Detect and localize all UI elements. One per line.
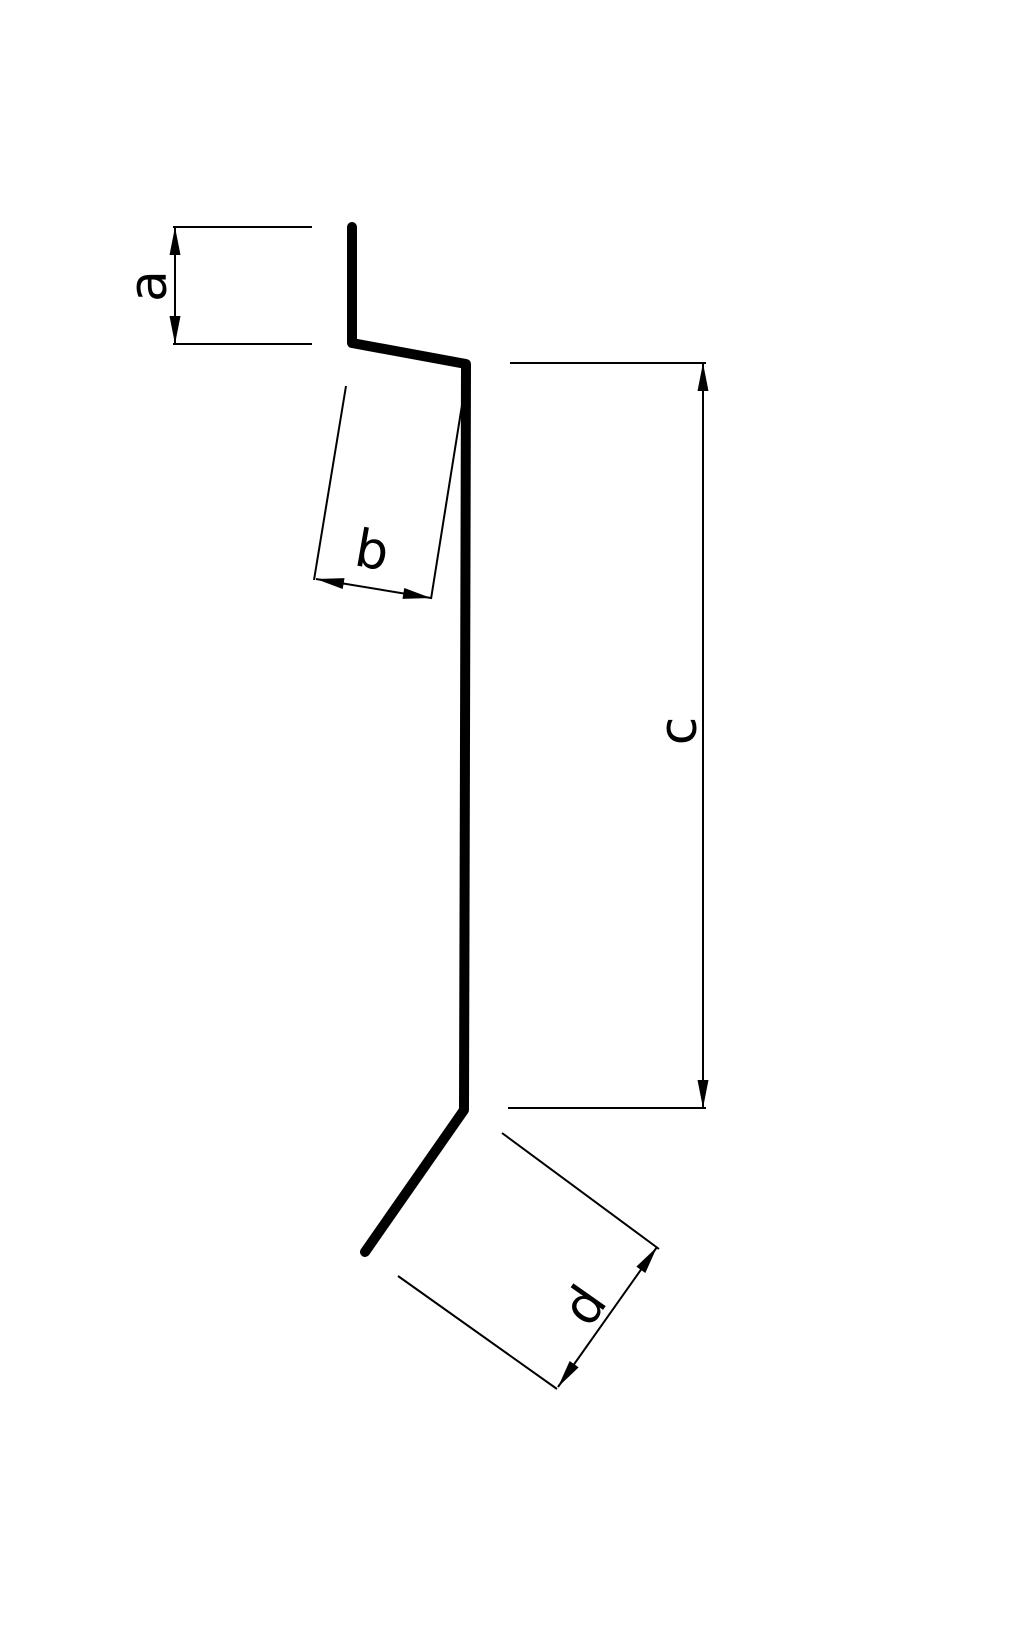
dim-a-arrowhead-2 — [170, 316, 181, 344]
dim-b-label: b — [351, 519, 394, 584]
dim-d-arrowhead-1 — [636, 1247, 657, 1273]
dim-b-extension-line-2 — [431, 405, 462, 599]
dim-b-arrowhead-1 — [316, 578, 345, 589]
dim-c-arrowhead-1 — [698, 363, 709, 391]
drawing-canvas: abcd — [0, 0, 1025, 1632]
dim-d-extension-line-1 — [502, 1133, 659, 1249]
dim-d-arrowhead-2 — [558, 1361, 579, 1387]
dim-d-label: d — [551, 1275, 619, 1336]
profile-flashing-diagram: abcd — [0, 0, 1025, 1632]
profile-outline — [352, 227, 466, 1252]
dim-c-label: c — [649, 717, 709, 746]
dim-c-arrowhead-2 — [698, 1080, 709, 1108]
dim-a-label: a — [119, 270, 179, 302]
dim-b-arrowhead-2 — [402, 588, 431, 599]
dim-a-arrowhead-1 — [170, 227, 181, 255]
dim-b-extension-line-1 — [314, 386, 346, 580]
dim-d-extension-line-2 — [398, 1276, 557, 1389]
